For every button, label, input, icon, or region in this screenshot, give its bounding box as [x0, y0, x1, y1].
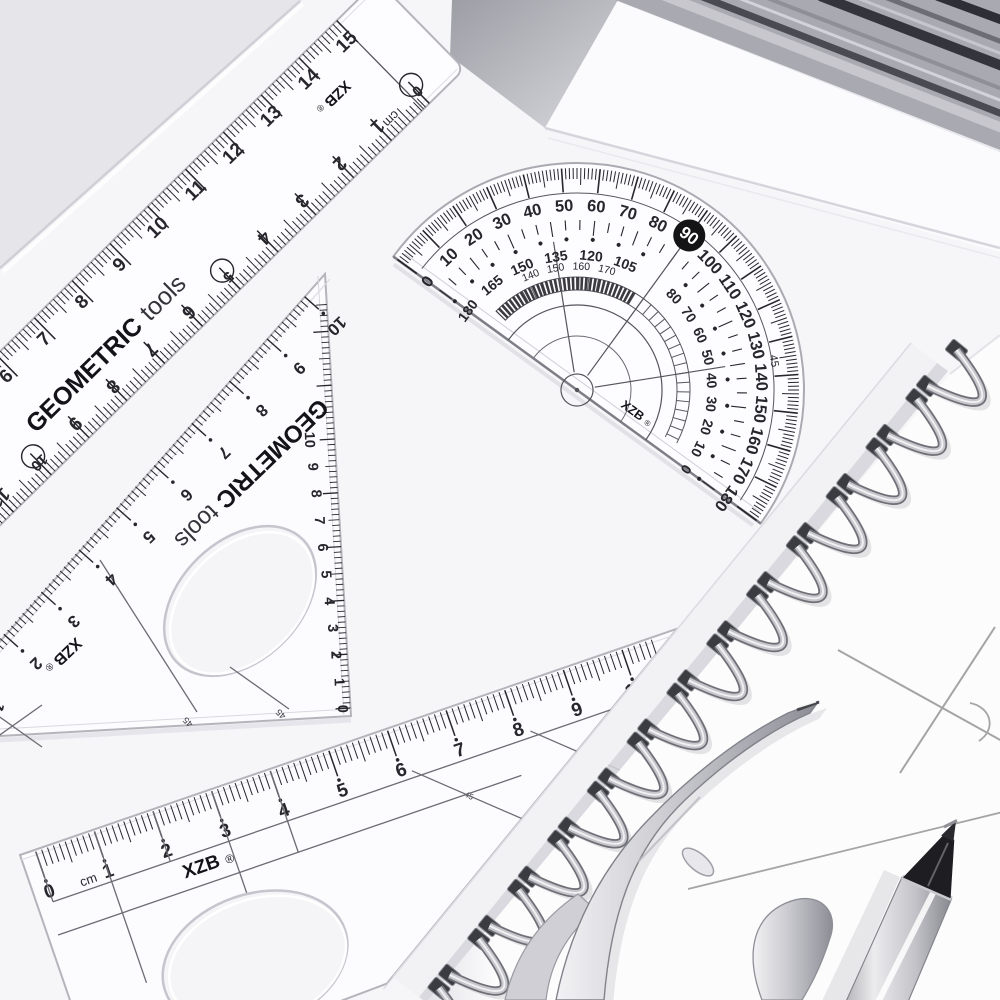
edge-number: 6: [314, 543, 330, 552]
hyp-dot: [171, 480, 175, 484]
edge-number: 2: [327, 651, 343, 660]
edge-number: 0: [334, 705, 350, 714]
hyp-dot: [284, 354, 288, 358]
hyp-dot: [21, 649, 25, 653]
edge-number: 7: [311, 516, 327, 525]
edge-number: 9: [304, 462, 320, 471]
edge-tick: [323, 493, 338, 494]
protractor-number: 140: [751, 363, 771, 392]
edge-tick: [320, 439, 335, 440]
hyp-dot: [96, 565, 100, 569]
edge-number: 5: [317, 570, 333, 579]
edge-number: 3: [324, 624, 340, 633]
protractor-number: 60: [586, 197, 606, 217]
protractor-number: 50: [554, 197, 574, 216]
hyp-dot: [209, 438, 213, 442]
hyp-dot: [246, 396, 250, 400]
hyp-dot: [133, 523, 137, 527]
hyp-dot: [321, 312, 325, 316]
edge-number: 1: [331, 678, 347, 687]
photo-geometry-tools-scene: 12345678910 0123456789104545 GEOMETRICto…: [0, 0, 1000, 1000]
protractor-45-label: 45: [767, 354, 781, 368]
protractor-number: 30: [703, 396, 721, 413]
protractor-number: 40: [703, 372, 720, 389]
edge-number: 4: [321, 597, 337, 606]
protractor-number: 150: [750, 395, 771, 424]
edge-tick: [317, 385, 332, 386]
edge-tick: [313, 331, 328, 332]
protractor-number: 160: [572, 260, 590, 273]
edge-number: 8: [307, 489, 323, 498]
hyp-dot: [58, 607, 62, 611]
